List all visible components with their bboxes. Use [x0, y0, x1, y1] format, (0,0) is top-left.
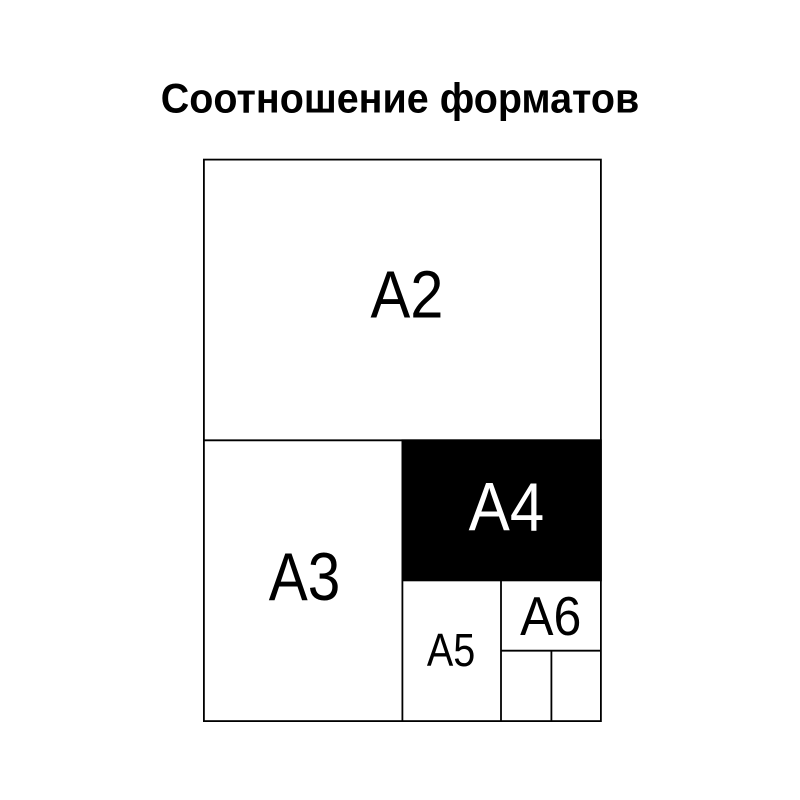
- svg-text:A2: A2: [370, 258, 443, 332]
- svg-text:A4: A4: [469, 469, 545, 546]
- svg-text:A5: A5: [427, 625, 475, 676]
- svg-text:Соотношение форматов: Соотношение форматов: [161, 74, 639, 121]
- svg-text:A3: A3: [269, 540, 341, 615]
- svg-text:A6: A6: [520, 586, 581, 648]
